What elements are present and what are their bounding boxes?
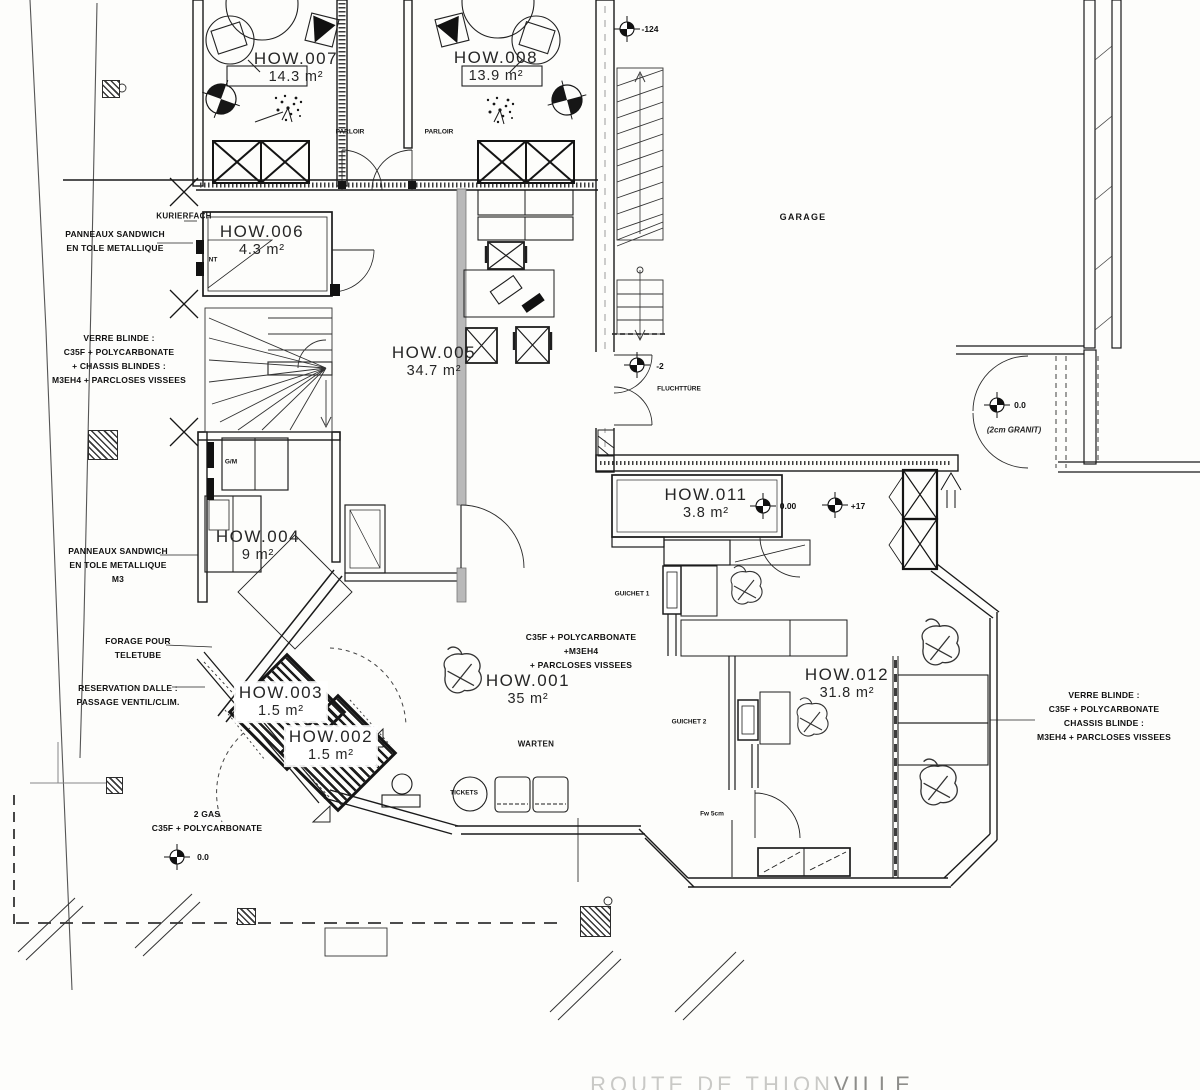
zone-label-parloir-1: PARLOIR (336, 129, 365, 136)
annotation-gas: 2 GAS C35F + POLYCARBONATE (152, 807, 263, 835)
zone-label-fluchtture: FLUCHTTÜRE (657, 386, 701, 393)
hatched-column (88, 430, 118, 460)
annotation-vitrage-hall: C35F + POLYCARBONATE +M3EH4 + PARCLOSES … (526, 630, 637, 672)
hatched-column (102, 80, 120, 98)
zone-label-kurierfach: KURIERFACH (156, 212, 211, 221)
zone-label-warten: WARTEN (518, 740, 554, 749)
annotation-panneaux-ouest: PANNEAUX SANDWICH EN TOLE METALLIQUE M3 (68, 544, 168, 586)
level-note-granit: (2cm GRANIT) (987, 426, 1041, 435)
level-value-parvis: 0.0 (197, 852, 209, 862)
annotation-panneaux-nord: PANNEAUX SANDWICH EN TOLE METALLIQUE (65, 227, 165, 255)
level-value-garage: -124 (641, 24, 658, 34)
room-label-how002: HOW.002 1.5 m² (286, 727, 376, 765)
level-value-how011: 0.00 (780, 501, 797, 511)
zone-label-tickets: TICKETS (450, 790, 478, 797)
hatched-column (237, 908, 256, 925)
room-label-how001: HOW.001 35 m² (486, 671, 570, 709)
zone-label-guichet-1: GUICHET 1 (615, 591, 650, 598)
floor-plan-canvas: HOW.007 14.3 m² HOW.008 13.9 m² HOW.006 … (0, 0, 1200, 1090)
hatched-column (580, 906, 611, 937)
room-label-how003: HOW.003 1.5 m² (236, 683, 326, 721)
level-value-passage: +17 (851, 501, 865, 511)
zone-label-fw5cm: Fw 5cm (700, 811, 724, 818)
room-label-how007: HOW.007 14.3 m² (254, 49, 338, 87)
annotation-verre-ouest: VERRE BLINDE : C35F + POLYCARBONATE + CH… (52, 331, 186, 387)
room-label-how005: HOW.005 34.7 m² (392, 343, 476, 381)
annotation-verre-est: VERRE BLINDE : C35F + POLYCARBONATE CHAS… (1037, 688, 1171, 744)
zone-label-guichet-2: GUICHET 2 (672, 719, 707, 726)
level-value-granit: 0.0 (1014, 400, 1026, 410)
zone-label-garage: GARAGE (780, 212, 827, 222)
room-label-how011: HOW.011 3.8 m² (665, 485, 748, 523)
level-value-flucht: -2 (656, 361, 664, 371)
annotation-forage: FORAGE POUR TELETUBE (105, 634, 170, 662)
zone-label-gm: G/M (225, 459, 237, 466)
hatched-column (106, 777, 123, 794)
annotation-reservation: RESERVATION DALLE : PASSAGE VENTIL/CLIM. (76, 681, 179, 709)
street-name: ROUTE DE THIONVILLE (590, 1072, 914, 1090)
room-label-how008: HOW.008 13.9 m² (454, 48, 538, 86)
room-label-how006: HOW.006 4.3 m² (220, 222, 304, 260)
zone-label-parloir-2: PARLOIR (425, 129, 454, 136)
room-label-how004: HOW.004 9 m² (216, 527, 300, 565)
zone-label-nt: NT (209, 257, 218, 264)
room-label-how012: HOW.012 31.8 m² (805, 665, 889, 703)
